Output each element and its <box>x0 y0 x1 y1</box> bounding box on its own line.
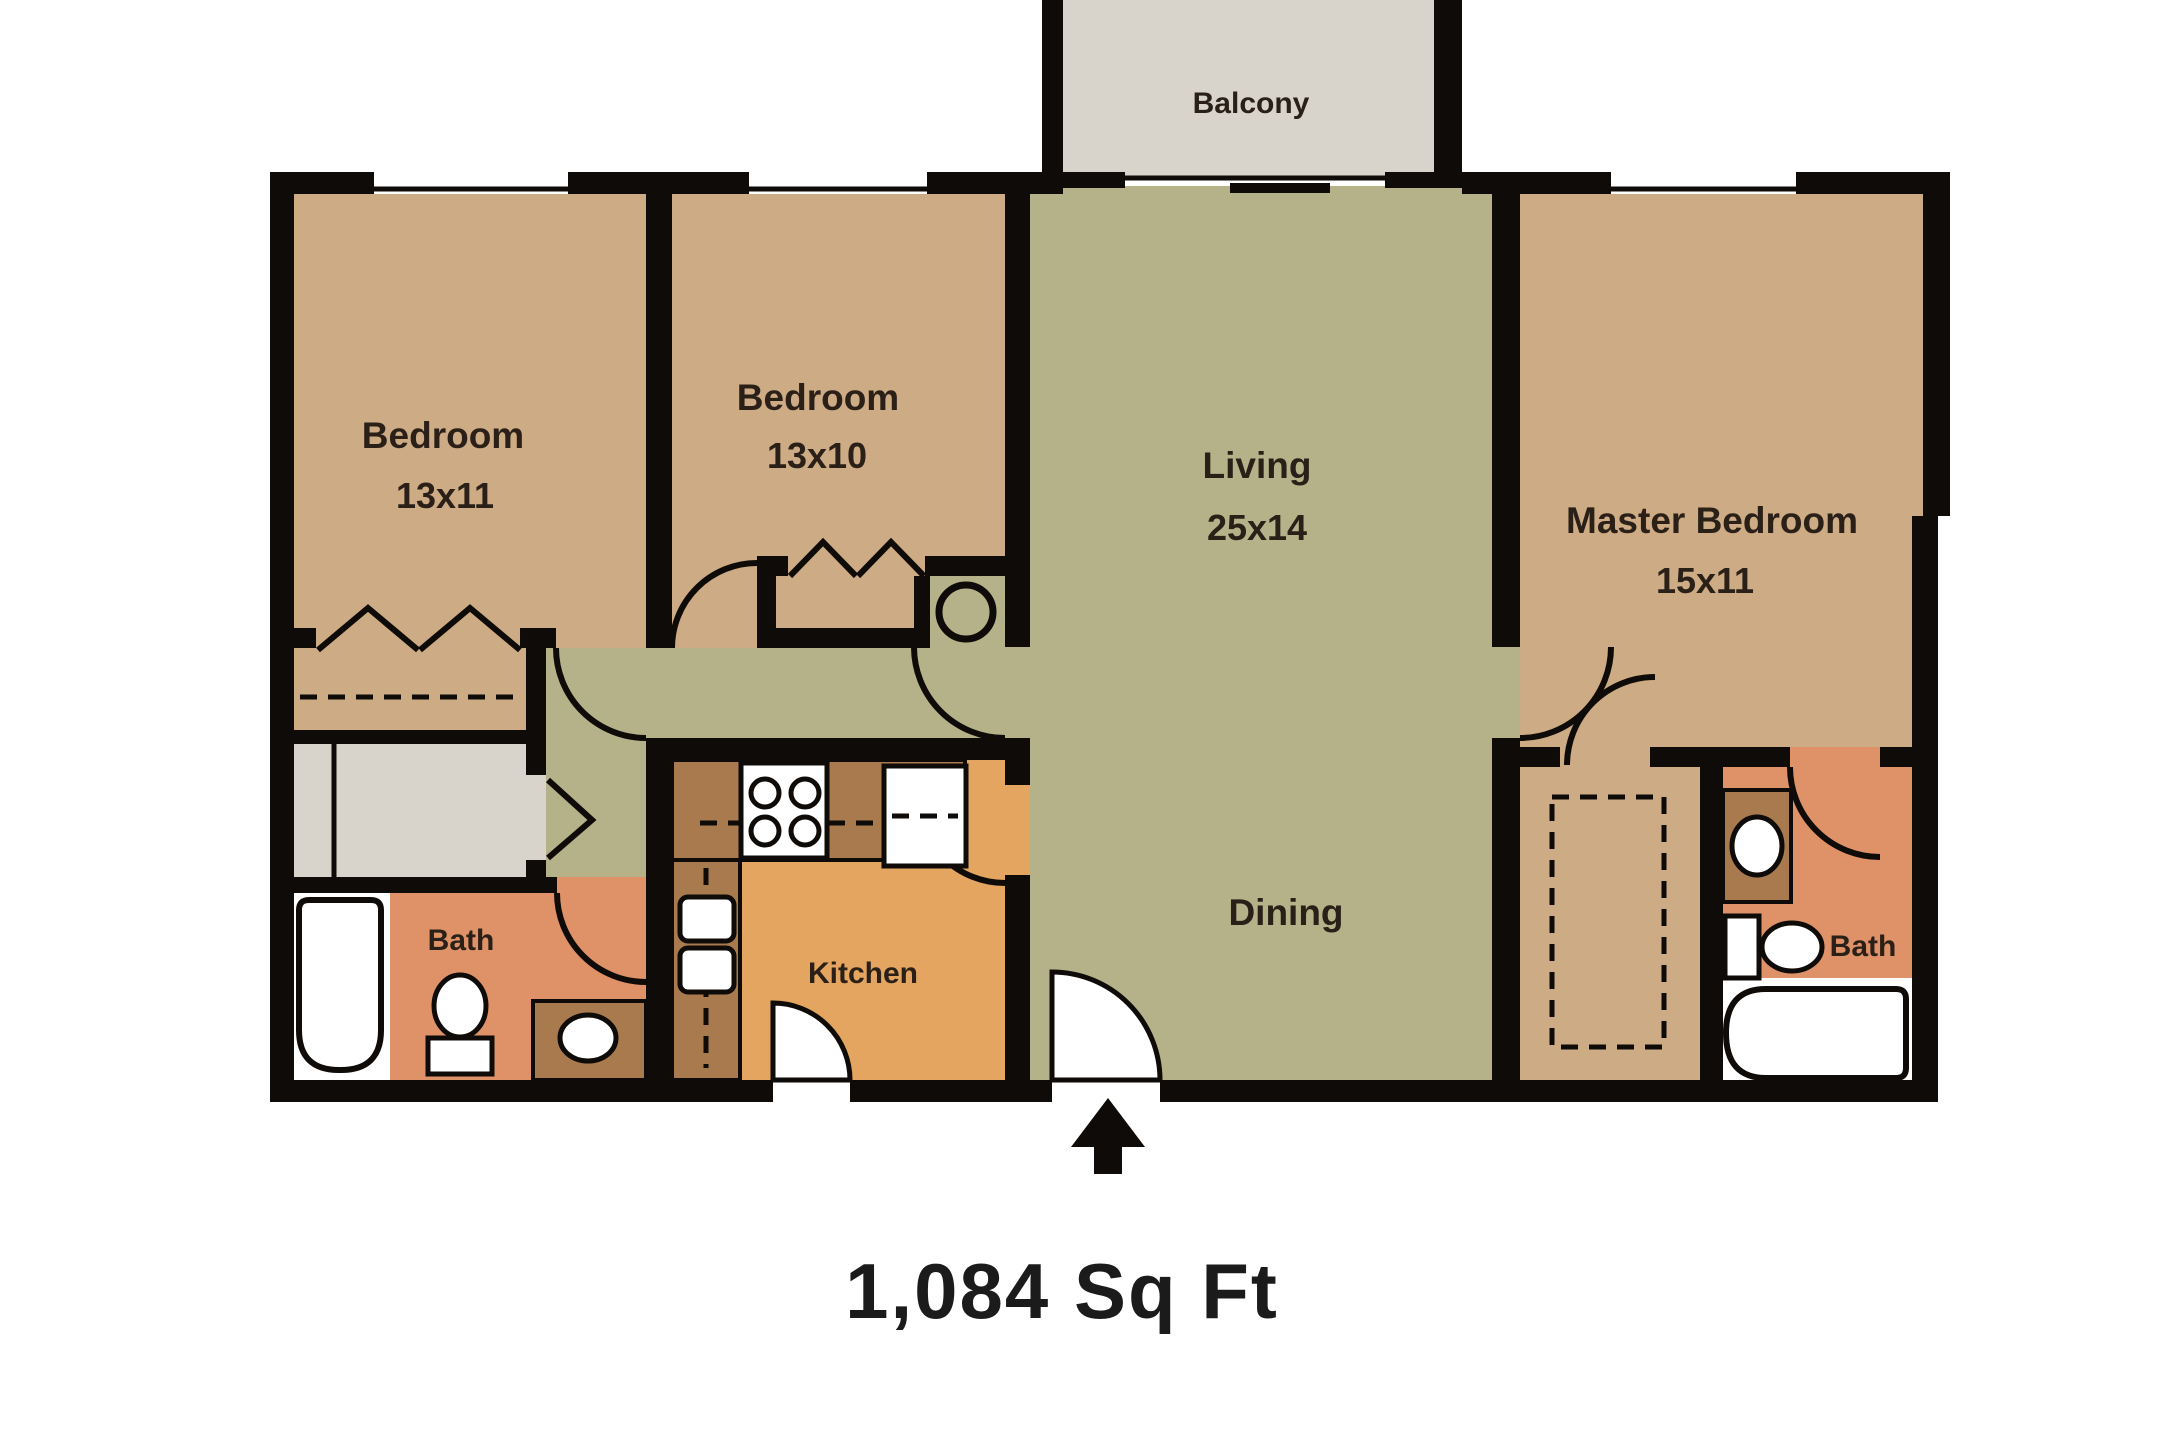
toilet-bowl-icon-bath2 <box>1762 923 1822 971</box>
wall-top-2 <box>568 172 749 194</box>
storage-threshold <box>526 775 546 860</box>
toilet-bowl-icon-bath1 <box>434 975 486 1037</box>
wall-outer-right-upper <box>1923 172 1950 516</box>
kitchen-label: Kitchen <box>808 957 918 990</box>
wall-bottom-1 <box>270 1080 773 1102</box>
wall-closet1-bottom <box>270 730 546 744</box>
wall-living-kitchen-low <box>1005 875 1030 1102</box>
wall-bottom-3 <box>1160 1080 1938 1102</box>
entrance-arrow-stem <box>1094 1147 1122 1174</box>
sink-icon-bath1 <box>560 1015 616 1061</box>
wall-kitchen-left <box>646 738 672 1102</box>
hall-living-threshold <box>1005 647 1030 738</box>
wall-storage-right-upper <box>526 648 546 775</box>
wall-bed1-bed2 <box>646 194 672 648</box>
bedroom1-dimensions: 13x11 <box>396 475 494 516</box>
wall-balcony-right <box>1434 0 1462 188</box>
wall-top-1 <box>270 172 374 194</box>
bedroom2-label: Bedroom <box>737 377 899 418</box>
dining-label: Dining <box>1228 892 1343 933</box>
total-area-label: 1,084 Sq Ft <box>845 1247 1279 1335</box>
master-threshold <box>1492 647 1520 738</box>
living-label: Living <box>1203 445 1312 486</box>
entrance-arrow-head <box>1071 1098 1145 1147</box>
toilet-tank-icon-bath2 <box>1725 916 1759 978</box>
wall-bath1-top <box>270 877 557 893</box>
wall-living-kitchen-mid <box>1005 738 1030 785</box>
wall-master-bottom-2 <box>1650 747 1790 767</box>
wall-top-4 <box>1462 172 1611 194</box>
wall-outer-right-lower <box>1912 516 1938 1102</box>
storage-closet-floor <box>294 743 526 877</box>
wall-bed2-living <box>1005 194 1030 647</box>
wall-top-balcony-left <box>1063 172 1125 188</box>
master-bedroom-floor <box>1520 194 1930 747</box>
master-bedroom-label: Master Bedroom <box>1566 500 1858 541</box>
living-dining-floor <box>1030 186 1492 1080</box>
wall-master-bottom-3 <box>1880 747 1923 767</box>
master-bedroom-dimensions: 15x11 <box>1656 560 1754 601</box>
kitchen-threshold <box>1005 785 1030 875</box>
sliding-door-panel <box>1230 183 1330 193</box>
wall-outer-left <box>270 172 294 1102</box>
walkin-closet-floor <box>1520 767 1700 1080</box>
kitchen-sink-basin-1 <box>680 897 734 941</box>
balcony-label: Balcony <box>1193 87 1310 120</box>
toilet-tank-icon-bath1 <box>428 1038 492 1074</box>
bathtub-icon-bath2 <box>1726 989 1906 1078</box>
wall-closet-bath2 <box>1700 767 1723 1102</box>
bedroom1-label: Bedroom <box>362 415 524 456</box>
bedroom1-threshold <box>556 628 646 648</box>
wall-kitchen-top <box>646 738 1005 760</box>
closet-threshold <box>1560 747 1650 767</box>
wall-balcony-left <box>1042 0 1063 188</box>
hallway-arm-floor <box>546 738 646 893</box>
bath1-threshold <box>557 877 646 893</box>
wall-closet-top-left <box>757 556 788 576</box>
bedroom2-threshold <box>672 628 757 648</box>
wall-living-master-lower <box>1492 738 1520 1102</box>
living-dimensions: 25x14 <box>1207 507 1307 548</box>
wall-hall-top-1 <box>294 628 316 648</box>
sink-icon-bath2 <box>1732 817 1782 875</box>
floor-plan-drawing: Balcony Bedroom 13x11 Bedroom 13x10 Livi… <box>0 0 2160 1440</box>
wall-closet-top-right <box>925 556 1005 576</box>
kitchen-sink-basin-2 <box>680 948 734 992</box>
bath2-label: Bath <box>1830 930 1897 963</box>
bath1-label: Bath <box>428 924 495 957</box>
floor-plan-canvas: Balcony Bedroom 13x11 Bedroom 13x10 Livi… <box>0 0 2160 1440</box>
bedroom2-dimensions: 13x10 <box>767 435 867 476</box>
bath2-threshold <box>1790 747 1880 767</box>
wall-living-master-upper <box>1492 194 1520 647</box>
wall-master-bottom-1 <box>1520 747 1560 767</box>
wall-closet-bottom <box>760 628 930 648</box>
wall-hall-top-2 <box>520 628 556 648</box>
hallway-floor <box>546 648 1005 738</box>
entrance-arrow-icon <box>1071 1098 1145 1174</box>
bathtub-icon-bath1 <box>299 900 381 1070</box>
